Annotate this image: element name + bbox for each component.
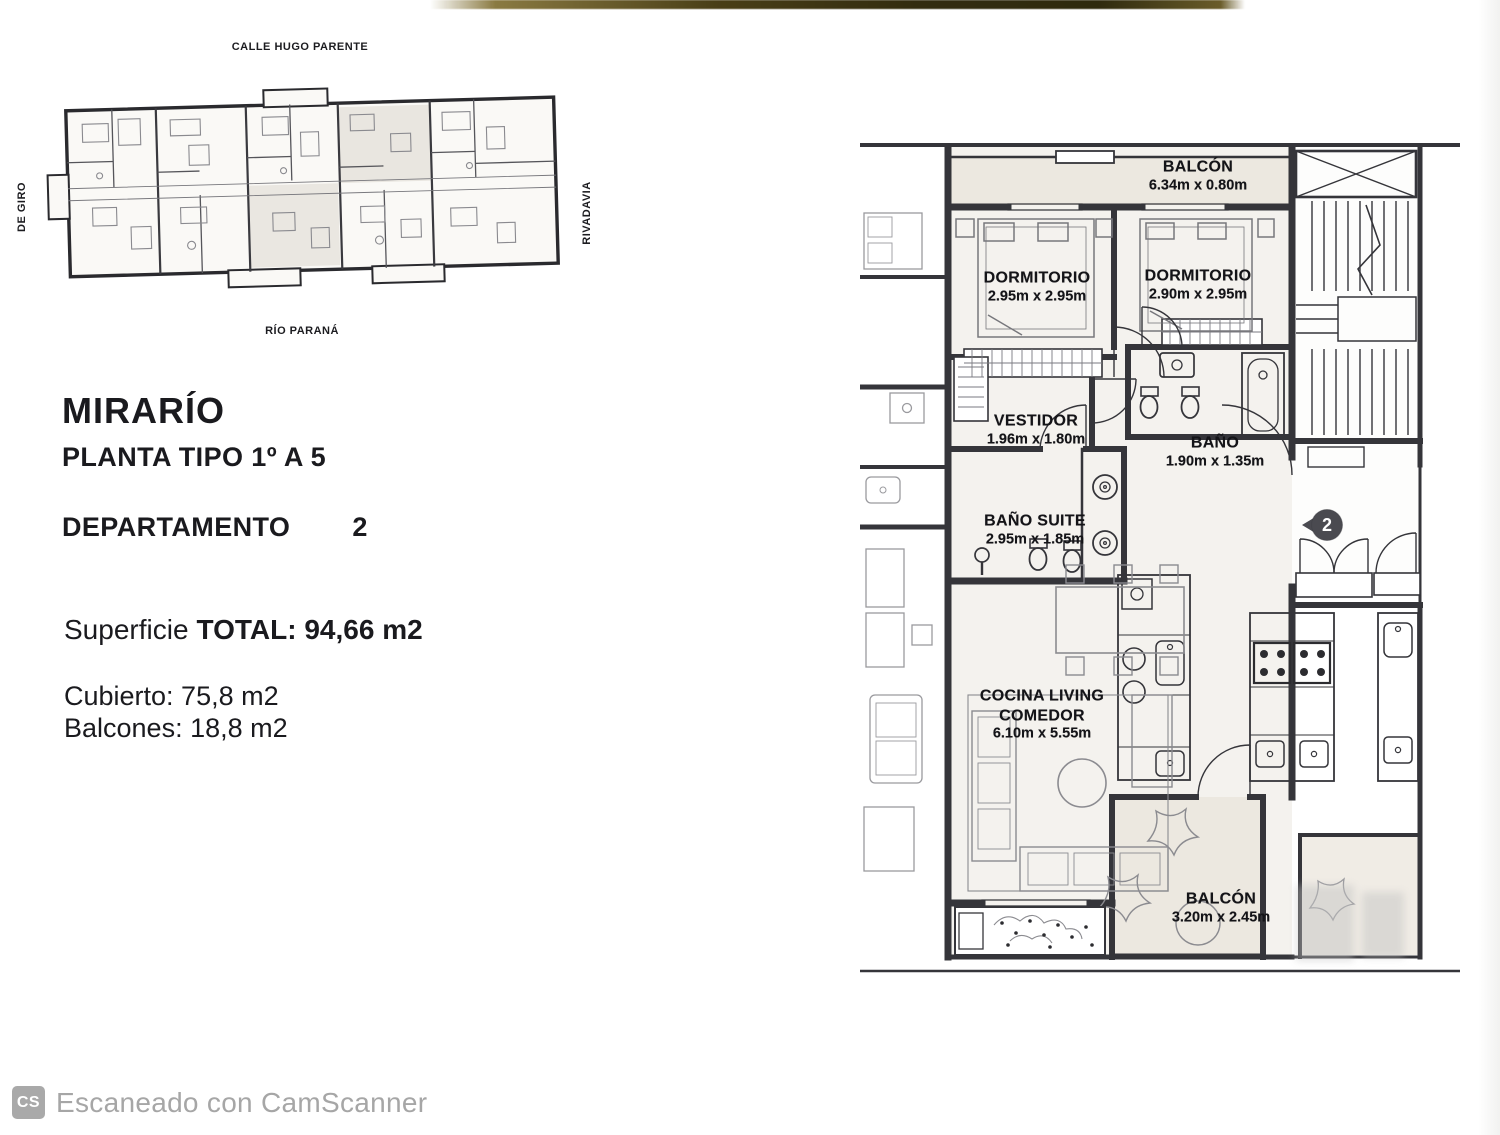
room-dims: 1.96m x 1.80m <box>987 431 1085 449</box>
room-dims: 2.90m x 2.95m <box>1145 286 1252 304</box>
room-dims: 2.95m x 1.85m <box>984 531 1086 549</box>
site-plan-drawing <box>40 72 580 304</box>
scan-edge-band <box>430 0 1245 9</box>
scan-watermark-blob <box>1296 885 1354 961</box>
project-title: MIRARÍO <box>62 390 225 432</box>
room-name: VESTIDOR <box>987 411 1085 431</box>
surface-row: SuperficieTOTAL: 94,66 m2 <box>64 614 423 646</box>
scan-watermark-blob <box>1362 892 1404 958</box>
room-dims: 1.90m x 1.35m <box>1166 453 1264 471</box>
room-name: BAÑO SUITE <box>984 511 1086 531</box>
entry-thresholds <box>1296 573 1420 597</box>
street-label-left: DE GIRO <box>16 182 28 232</box>
room-name: BAÑO <box>1166 433 1264 453</box>
room-label-cocina: COCINA LIVING COMEDOR 6.10m x 5.55m <box>980 687 1104 744</box>
unit-plan-drawing <box>860 135 1460 985</box>
surface-total: TOTAL: 94,66 m2 <box>197 614 423 645</box>
street-label-bottom: RÍO PARANÁ <box>265 325 339 337</box>
room-label-balcony-top: BALCÓN 6.34m x 0.80m <box>1149 157 1247 194</box>
plan-type: PLANTA TIPO 1º A 5 <box>62 442 326 473</box>
room-dims: 6.10m x 5.55m <box>980 726 1104 744</box>
room-label-bano: BAÑO 1.90m x 1.35m <box>1166 433 1264 470</box>
balconies-area: Balcones: 18,8 m2 <box>64 713 288 744</box>
room-dims: 6.34m x 0.80m <box>1149 177 1247 195</box>
department-row: DEPARTAMENTO2 <box>62 512 368 543</box>
room-label-bedroom-left: DORMITORIO 2.95m x 2.95m <box>984 268 1091 305</box>
page-edge-shade <box>1478 0 1500 1135</box>
room-dims: 3.20m x 2.45m <box>1172 909 1270 927</box>
street-label-top: CALLE HUGO PARENTE <box>232 41 369 53</box>
department-label: DEPARTAMENTO <box>62 512 290 542</box>
neighbor-left-furniture <box>864 213 932 871</box>
room-name: BALCÓN <box>1172 889 1270 909</box>
room-dims: 2.95m x 2.95m <box>984 288 1091 306</box>
camscanner-badge-icon: CS <box>12 1086 45 1119</box>
covered-area: Cubierto: 75,8 m2 <box>64 681 279 712</box>
room-label-bano-suite: BAÑO SUITE 2.95m x 1.85m <box>984 511 1086 548</box>
surface-prefix: Superficie <box>64 614 189 645</box>
room-label-vestidor: VESTIDOR 1.96m x 1.80m <box>987 411 1085 448</box>
camscanner-footer: CS Escaneado con CamScanner <box>12 1086 427 1119</box>
scanned-floor-plan-page: CALLE HUGO PARENTE RÍO PARANÁ DE GIRO RI… <box>0 0 1500 1135</box>
street-label-right: RIVADAVIA <box>581 181 593 244</box>
room-name: DORMITORIO <box>1145 266 1252 286</box>
room-name: COCINA LIVING COMEDOR <box>980 687 1104 726</box>
camscanner-footer-text: Escaneado con CamScanner <box>56 1087 427 1119</box>
room-label-balcony-bottom: BALCÓN 3.20m x 2.45m <box>1172 889 1270 926</box>
unit-number-marker: 2 <box>1312 510 1342 540</box>
department-number: 2 <box>352 512 367 542</box>
balcony-window-sill <box>1056 151 1114 163</box>
room-name: BALCÓN <box>1149 157 1247 177</box>
room-label-bedroom-right: DORMITORIO 2.90m x 2.95m <box>1145 266 1252 303</box>
room-name: DORMITORIO <box>984 268 1091 288</box>
